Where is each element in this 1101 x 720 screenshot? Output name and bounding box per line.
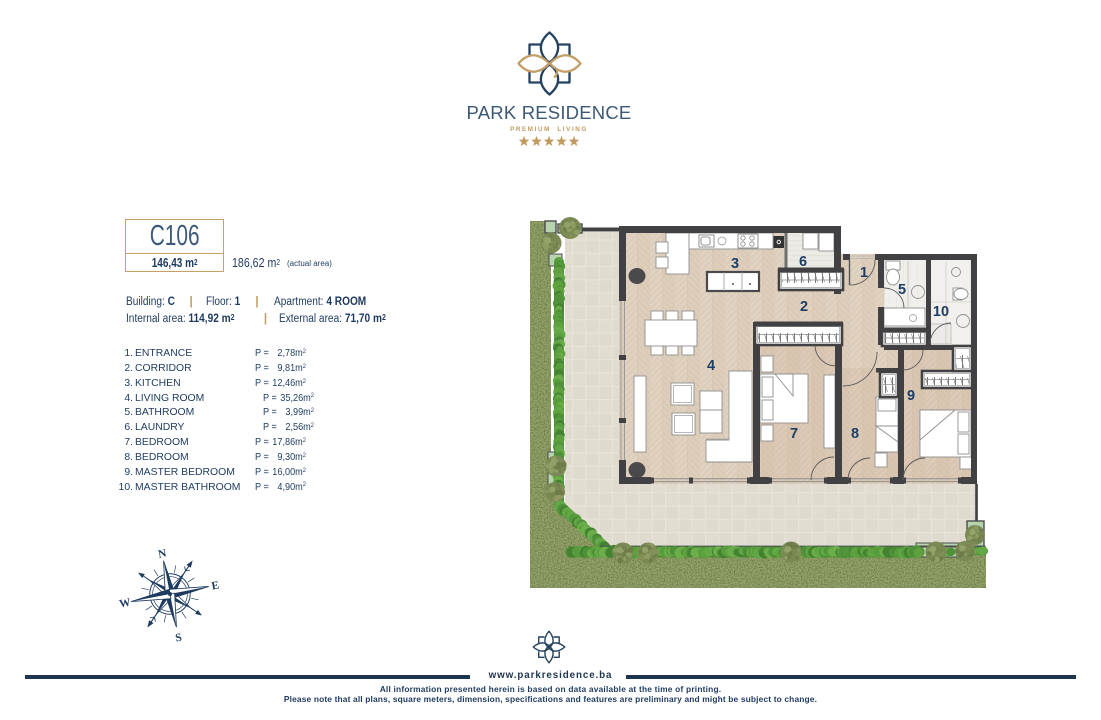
svg-text:W: W <box>118 596 132 610</box>
svg-text:3: 3 <box>731 256 739 272</box>
svg-text:N: N <box>157 547 167 560</box>
svg-text:PREMIUM LIVING: PREMIUM LIVING <box>510 126 588 133</box>
svg-text:5: 5 <box>898 282 906 298</box>
svg-text:6: 6 <box>799 254 807 270</box>
svg-text:PARK RESIDENCE: PARK RESIDENCE <box>467 102 632 123</box>
svg-text:7: 7 <box>790 426 798 442</box>
svg-text:2: 2 <box>800 299 808 315</box>
svg-text:10: 10 <box>933 304 949 320</box>
svg-text:9: 9 <box>907 388 915 404</box>
svg-text:1: 1 <box>860 265 868 281</box>
svg-text:8: 8 <box>851 426 859 442</box>
svg-text:E: E <box>211 579 221 592</box>
svg-text:S: S <box>174 632 182 645</box>
svg-text:4: 4 <box>707 358 715 374</box>
